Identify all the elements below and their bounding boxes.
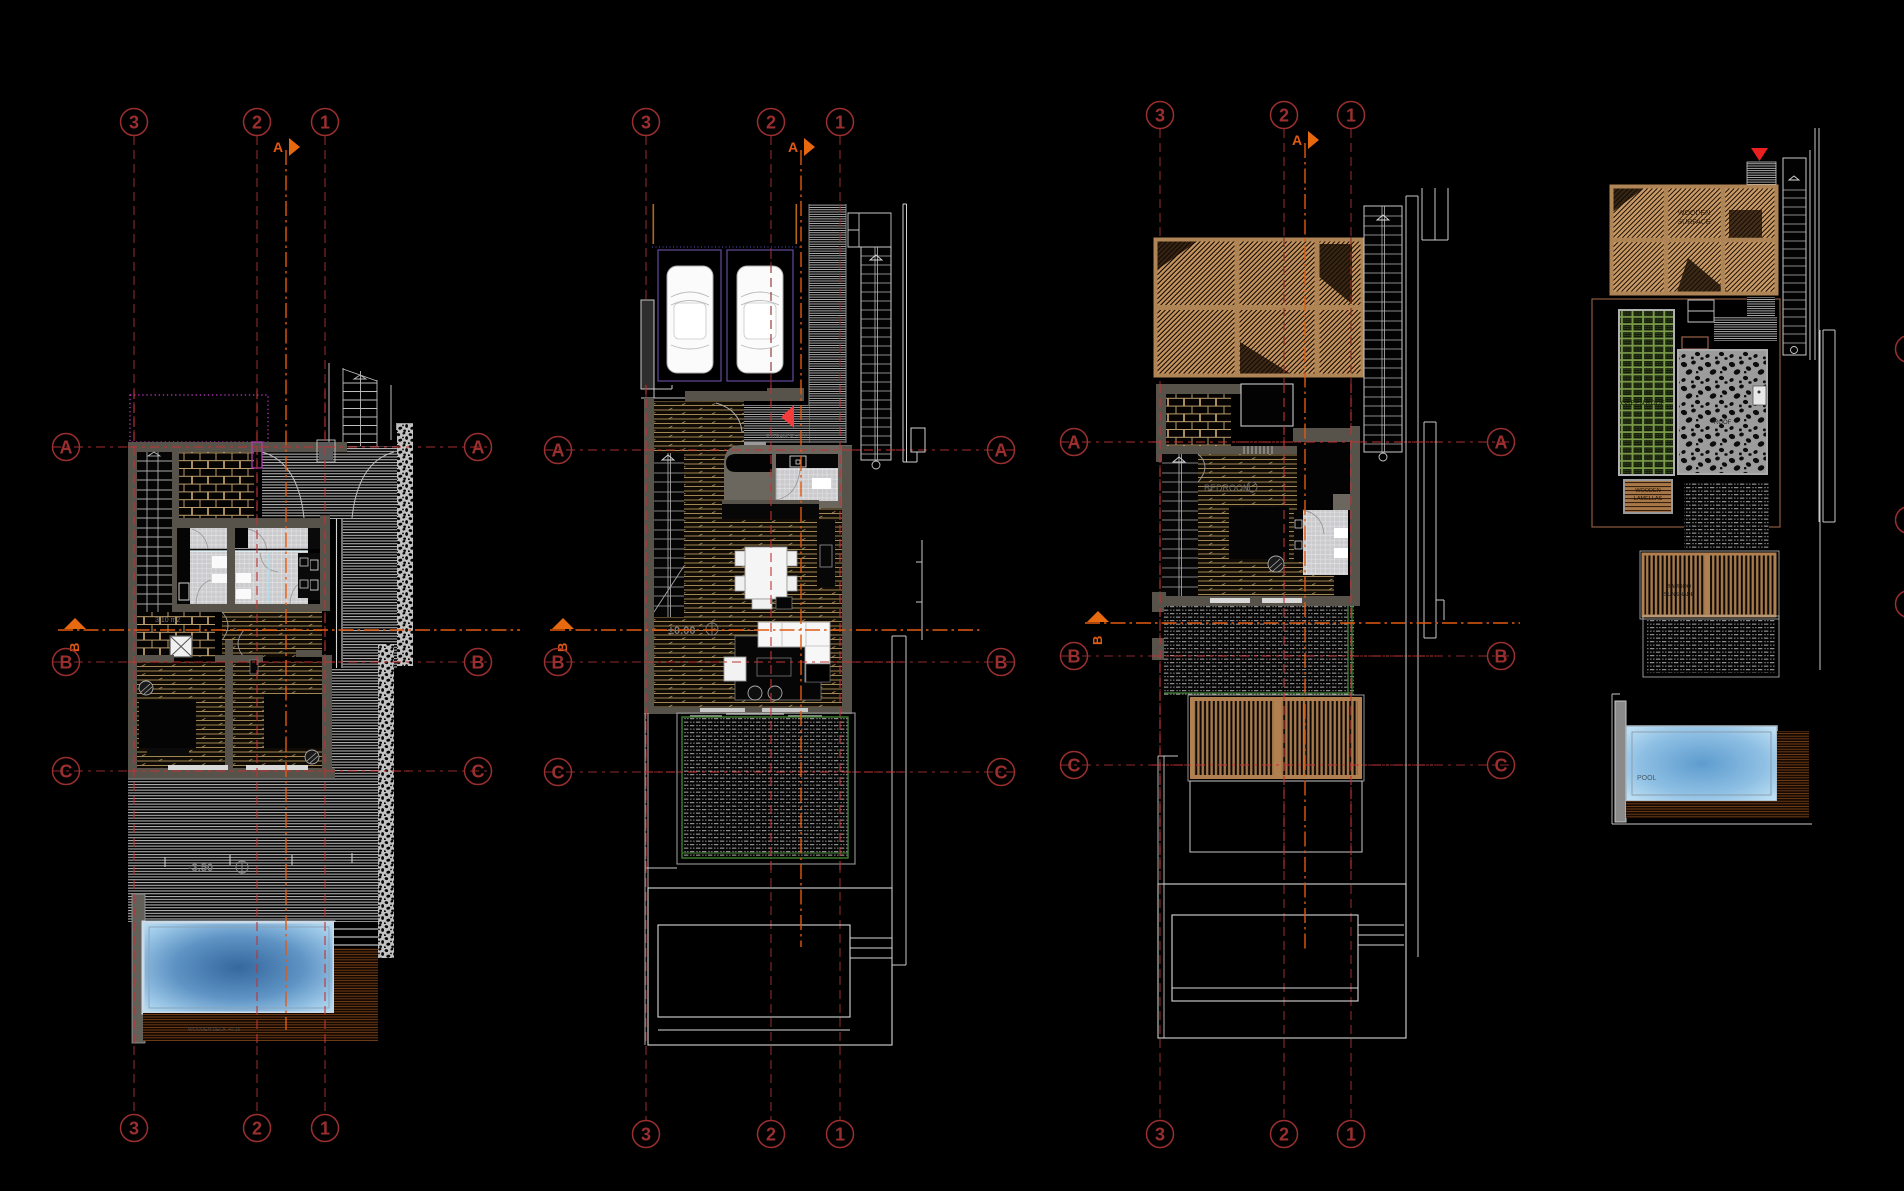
svg-text:1: 1 (1346, 106, 1356, 126)
svg-text:BEDROOM: BEDROOM (1204, 483, 1251, 493)
svg-text:3: 3 (1155, 1125, 1165, 1145)
svg-text:B: B (555, 643, 570, 652)
svg-text:C: C (1068, 756, 1081, 776)
svg-text:B: B (472, 653, 485, 673)
svg-text:B: B (1068, 647, 1081, 667)
svg-text:A: A (1292, 132, 1302, 148)
svg-text:B: B (60, 653, 73, 673)
svg-text:±0.00: ±0.00 (668, 625, 695, 637)
svg-text:SUNSHADE: SUNSHADE (1664, 592, 1695, 598)
svg-text:3: 3 (129, 1119, 139, 1139)
svg-text:C: C (1495, 756, 1508, 776)
svg-text:A: A (552, 441, 565, 461)
svg-text:WOODEN: WOODEN (1635, 488, 1660, 494)
svg-text:2: 2 (252, 1119, 262, 1139)
svg-text:BAMBOO: BAMBOO (1667, 584, 1692, 590)
svg-text:POOL: POOL (1637, 775, 1657, 782)
svg-text:A: A (788, 139, 798, 155)
svg-text:A: A (1495, 433, 1508, 453)
svg-text:2: 2 (766, 1125, 776, 1145)
svg-text:C: C (995, 763, 1008, 783)
svg-text:1: 1 (835, 1125, 845, 1145)
svg-text:-3.50: -3.50 (188, 862, 213, 874)
svg-text:3: 3 (1155, 106, 1165, 126)
svg-text:1: 1 (320, 1119, 330, 1139)
svg-text:LAMELLAS: LAMELLAS (1634, 496, 1663, 502)
svg-text:3: 3 (129, 113, 139, 133)
svg-text:A: A (273, 139, 283, 155)
svg-text:A: A (995, 441, 1008, 461)
svg-text:3.10 m2: 3.10 m2 (155, 617, 180, 624)
svg-text:B: B (552, 653, 565, 673)
svg-text:A: A (472, 438, 485, 458)
svg-text:B: B (995, 653, 1008, 673)
svg-text:B: B (1495, 647, 1508, 667)
svg-text:C: C (60, 762, 73, 782)
svg-text:B: B (1090, 636, 1105, 645)
svg-text:1: 1 (320, 113, 330, 133)
svg-text:A: A (1068, 433, 1081, 453)
svg-text:1: 1 (1346, 1125, 1356, 1145)
svg-text:WOODEN DECK +0.15: WOODEN DECK +0.15 (188, 1027, 241, 1033)
svg-text:2: 2 (252, 113, 262, 133)
svg-text:1: 1 (835, 113, 845, 133)
svg-text:SURFACE: SURFACE (1677, 219, 1710, 226)
svg-text:ROOF: ROOF (1714, 420, 1732, 426)
svg-text:A: A (60, 438, 73, 458)
svg-text:2: 2 (1279, 106, 1289, 126)
svg-text:GREEN ROOF: GREEN ROOF (1621, 400, 1665, 407)
svg-text:C: C (472, 762, 485, 782)
svg-text:2: 2 (766, 113, 776, 133)
svg-text:WOODEN: WOODEN (1678, 210, 1710, 217)
svg-text:C: C (552, 763, 565, 783)
svg-text:3: 3 (641, 113, 651, 133)
svg-text:2: 2 (1279, 1125, 1289, 1145)
svg-text:3: 3 (641, 1125, 651, 1145)
